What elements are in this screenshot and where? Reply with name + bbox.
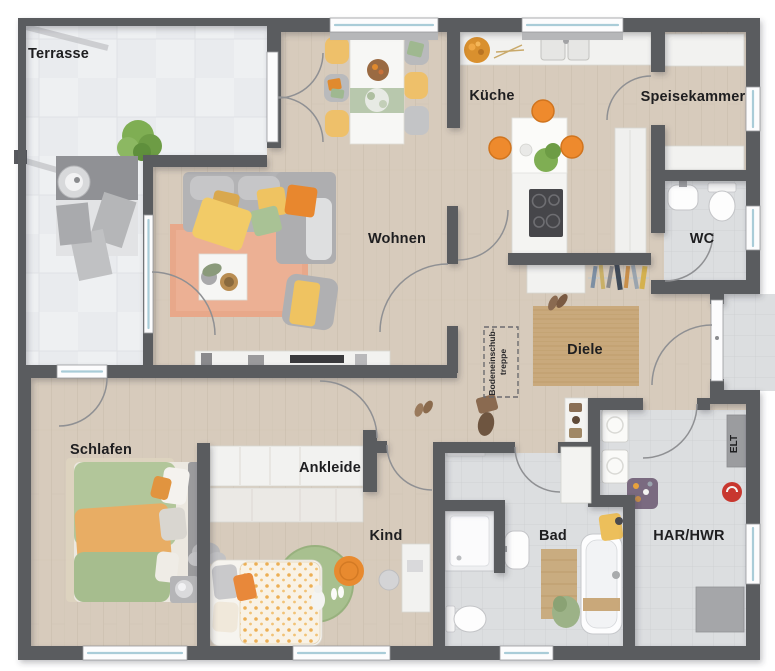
hall-console xyxy=(565,398,588,442)
window-kitchen xyxy=(522,18,623,32)
kitchen-island xyxy=(512,118,567,255)
bar-stool-2 xyxy=(532,100,554,122)
dining-chair-2 xyxy=(325,110,349,137)
dining-chair-4 xyxy=(404,106,429,135)
bar-stool-3 xyxy=(561,136,583,158)
label-diele: Diele xyxy=(567,342,603,358)
armchair xyxy=(281,273,340,332)
label-terrasse: Terrasse xyxy=(28,46,89,62)
dining-table xyxy=(350,34,404,144)
shower xyxy=(445,511,494,571)
bar-stool xyxy=(489,137,511,159)
floor-entrance-porch xyxy=(722,294,775,391)
window-dining xyxy=(330,18,438,32)
dining-chair xyxy=(325,37,349,64)
dining-chair-3 xyxy=(404,72,428,99)
window-bad xyxy=(500,646,553,660)
label-kueche: Küche xyxy=(469,88,514,104)
label-kind: Kind xyxy=(369,528,402,544)
window-har xyxy=(746,524,760,584)
window-kids xyxy=(293,646,390,660)
vacuum xyxy=(722,482,742,502)
wc-toilet xyxy=(708,183,736,221)
label-ankleide: Ankleide xyxy=(299,460,361,476)
window-sill xyxy=(330,32,438,40)
dryer xyxy=(602,450,628,483)
floor-cushion xyxy=(334,556,364,586)
coffee-table xyxy=(199,254,247,300)
terrace-door-bedroom xyxy=(57,365,107,378)
storage-box xyxy=(696,587,744,632)
bad-toilet xyxy=(446,606,486,632)
tv-sideboard xyxy=(195,351,390,367)
label-har-hwr: HAR/HWR xyxy=(653,528,725,544)
label-schlafen: Schlafen xyxy=(70,442,132,458)
label-elt: ELT xyxy=(729,435,740,453)
label-wohnen: Wohnen xyxy=(368,231,426,247)
terrace-slider-wohnen xyxy=(144,215,153,333)
floor-plan-page: Bodeneinschub- treppe xyxy=(0,0,775,671)
label-speisekammer: Speisekammer xyxy=(641,89,746,105)
wardrobe-row-2 xyxy=(210,488,363,522)
window-sill-2 xyxy=(522,32,623,40)
bedroom-furniture xyxy=(66,458,200,603)
dining-furniture xyxy=(324,34,429,144)
label-wc: WC xyxy=(690,231,715,247)
window-wc xyxy=(746,206,760,250)
bad-cabinet xyxy=(561,447,591,503)
floor-plan: Bodeneinschub- treppe xyxy=(0,0,775,671)
pantry-shelf-bottom xyxy=(660,146,744,170)
nightstand xyxy=(170,576,198,603)
yellow-towels xyxy=(598,513,623,542)
washer xyxy=(602,409,628,442)
attic-stairs-label-line2: treppe xyxy=(498,349,508,375)
slippers xyxy=(331,588,337,600)
window-bedroom xyxy=(83,646,187,660)
pantry-shelf-top xyxy=(660,34,744,66)
kids-bed xyxy=(210,560,322,646)
dining-chair-pillow xyxy=(324,74,349,102)
dining-chair-napkin xyxy=(404,36,429,65)
window-pantry xyxy=(746,87,760,131)
attic-stairs-label-line1: Bodeneinschub- xyxy=(487,328,497,395)
closet-furniture xyxy=(210,446,363,522)
label-bad: Bad xyxy=(539,528,567,544)
bathtub xyxy=(581,534,622,634)
